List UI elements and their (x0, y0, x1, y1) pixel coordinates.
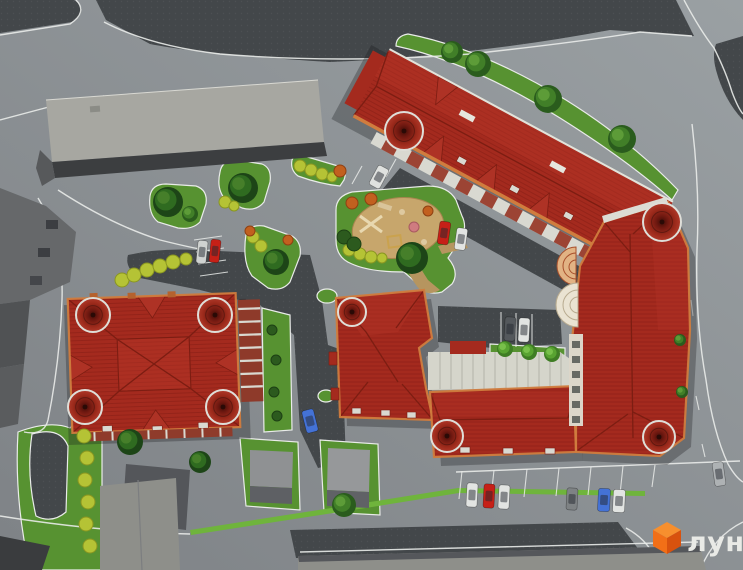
bush (377, 253, 387, 263)
chimney (168, 291, 176, 297)
bush (140, 263, 154, 277)
turret (431, 420, 463, 452)
tree (465, 51, 491, 77)
tree (674, 334, 686, 346)
tree (544, 346, 560, 362)
bush (316, 168, 328, 180)
tree (521, 344, 537, 360)
site-plan-screenshot: лун (0, 0, 743, 570)
stair-tower (331, 388, 339, 400)
turret (338, 298, 366, 326)
turret (643, 203, 681, 241)
bush (153, 259, 167, 273)
tree (441, 41, 463, 63)
bush (81, 495, 95, 509)
turret (385, 112, 423, 150)
bush (365, 251, 377, 263)
bush (294, 160, 306, 172)
turret (206, 390, 240, 424)
car (518, 318, 530, 343)
tree (534, 85, 562, 113)
tree (263, 249, 289, 275)
bush (245, 226, 255, 236)
car (504, 317, 516, 342)
tree (117, 429, 143, 455)
turret (643, 421, 675, 453)
car (566, 488, 578, 511)
bush (305, 164, 317, 176)
bush (255, 240, 267, 252)
car (498, 485, 510, 510)
chimney (128, 293, 136, 299)
bush (229, 201, 239, 211)
bush (271, 355, 281, 365)
playground-item (421, 239, 427, 245)
tree (189, 451, 211, 473)
bush (180, 253, 192, 265)
bush (83, 539, 97, 553)
bush (79, 517, 93, 531)
bush (77, 429, 91, 443)
tree (396, 242, 428, 274)
turret (68, 390, 102, 424)
tree (676, 386, 688, 398)
bush (334, 165, 346, 177)
wing-red-roof (450, 341, 486, 354)
bush (80, 451, 94, 465)
bush (347, 237, 361, 251)
site-plan-render: лун (0, 0, 743, 570)
turret (198, 298, 232, 332)
utility-box-1 (250, 450, 293, 504)
car (483, 484, 495, 509)
playground-item (399, 209, 405, 215)
rooftop-vent (90, 106, 100, 113)
car (209, 239, 221, 263)
stair-tower (329, 352, 337, 365)
bush (78, 473, 92, 487)
tree (608, 125, 636, 153)
bush (166, 255, 180, 269)
bush (127, 268, 141, 282)
bush (346, 197, 358, 209)
tree (332, 493, 356, 517)
car (196, 240, 208, 264)
bush (269, 387, 279, 397)
turret (76, 298, 110, 332)
tree (228, 173, 258, 203)
playground-carousel (409, 222, 419, 232)
bush (267, 325, 277, 335)
bush (283, 235, 293, 245)
tree (153, 187, 183, 217)
lun-logo: лун (653, 522, 743, 558)
car (597, 488, 610, 512)
car (466, 483, 478, 508)
tree (497, 341, 513, 357)
bush (272, 411, 282, 421)
car (612, 489, 625, 513)
bush (365, 193, 377, 205)
lawn-oval-1 (317, 289, 337, 303)
parking-left-loop (30, 432, 68, 519)
bush (423, 206, 433, 216)
tree (182, 206, 198, 222)
logo-text: лун (687, 527, 743, 558)
